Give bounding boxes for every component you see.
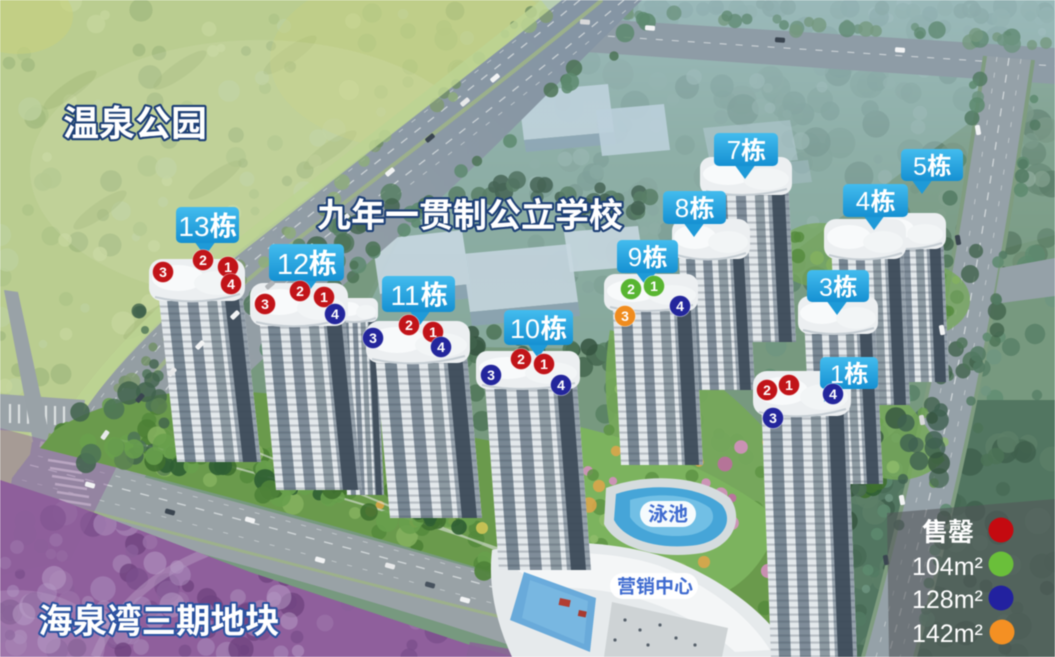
svg-text:8: 8 — [675, 193, 689, 223]
svg-text:3: 3 — [159, 264, 167, 280]
svg-text:104m²: 104m² — [912, 553, 983, 581]
svg-text:4: 4 — [331, 306, 339, 322]
svg-text:2: 2 — [627, 281, 635, 297]
svg-text:3: 3 — [621, 308, 629, 324]
svg-text:4: 4 — [829, 386, 837, 402]
svg-text:1: 1 — [224, 259, 232, 275]
svg-text:4: 4 — [227, 276, 235, 292]
svg-text:3: 3 — [369, 330, 377, 346]
svg-text:5: 5 — [913, 153, 927, 181]
svg-text:2: 2 — [405, 317, 413, 333]
svg-text:3: 3 — [769, 410, 777, 426]
svg-text:1: 1 — [320, 289, 328, 305]
svg-text:1: 1 — [785, 377, 793, 393]
svg-text:10: 10 — [510, 314, 540, 344]
svg-text:11: 11 — [390, 280, 419, 311]
svg-text:3: 3 — [487, 367, 495, 383]
svg-text:2: 2 — [517, 351, 525, 367]
svg-text:1: 1 — [650, 278, 658, 294]
svg-text:4: 4 — [437, 339, 445, 355]
svg-text:4: 4 — [557, 377, 565, 393]
svg-text:1: 1 — [540, 356, 548, 372]
svg-text:128m²: 128m² — [912, 586, 983, 614]
svg-text:142m²: 142m² — [912, 620, 983, 648]
svg-text:2: 2 — [199, 252, 207, 268]
svg-text:3: 3 — [819, 274, 833, 302]
svg-text:12: 12 — [277, 249, 309, 281]
svg-text:13: 13 — [178, 211, 209, 242]
svg-text:9: 9 — [628, 242, 642, 272]
svg-text:4: 4 — [676, 298, 684, 314]
svg-text:2: 2 — [296, 283, 304, 299]
svg-text:2: 2 — [763, 382, 771, 398]
svg-text:3: 3 — [261, 296, 269, 312]
svg-text:7: 7 — [727, 135, 741, 165]
svg-text:4: 4 — [856, 186, 870, 216]
